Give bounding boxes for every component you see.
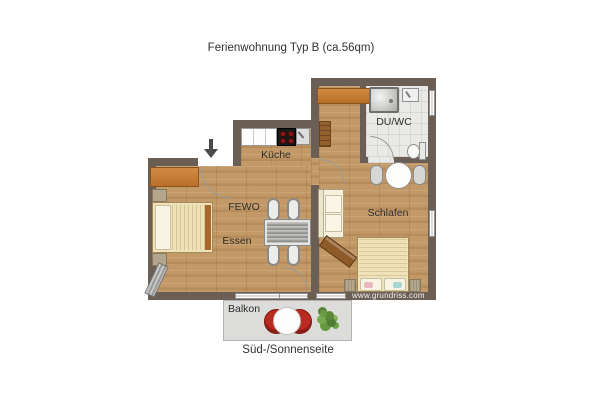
- sofa: [318, 189, 344, 238]
- dining-chair: [287, 198, 300, 221]
- room-label-schlafen: Schlafen: [357, 207, 419, 219]
- pillow-accent: [393, 282, 402, 288]
- room-label-kueche: Küche: [253, 149, 299, 161]
- room-label-duwc: DU/WC: [368, 116, 420, 128]
- floor-doorway: [311, 158, 319, 185]
- balcony-table: [273, 307, 301, 335]
- bed-pillow: [384, 278, 406, 291]
- watermark: www.grundriss.com: [352, 291, 425, 300]
- dining-chair: [287, 243, 300, 266]
- sofa-cushion: [325, 195, 342, 213]
- window-bathroom-right: [429, 90, 435, 116]
- sofa-backrest: [319, 190, 324, 237]
- wall-kitchen-top: [233, 120, 319, 128]
- faucet: [298, 131, 305, 138]
- sofa-cushion: [325, 214, 342, 232]
- kitchen-sink: [296, 128, 310, 145]
- dining-chair: [267, 198, 280, 221]
- pillow-accent: [364, 282, 373, 288]
- room-label-balkon: Balkon: [228, 303, 268, 315]
- kitchen-counter: [241, 128, 277, 146]
- orientation-label: Süd-/Sonnenseite: [188, 344, 388, 356]
- wall-bedroom-top: [311, 78, 436, 86]
- floor-plan-screen: Ferienwohnung Typ B (ca.56qm): [0, 0, 600, 400]
- toilet-bowl: [407, 144, 420, 159]
- room-label-fewo: FEWO: [222, 201, 266, 213]
- plant-foliage: [320, 310, 327, 317]
- nightstand: [152, 189, 167, 202]
- stove-burner: [280, 131, 286, 137]
- double-bed: [357, 237, 409, 292]
- window-bedroom-right: [429, 210, 435, 237]
- stove: [277, 128, 296, 146]
- bathroom-sink: [402, 88, 419, 102]
- page-title: Ferienwohnung Typ B (ca.56qm): [0, 42, 582, 54]
- shower: [369, 87, 399, 113]
- bed-blanket: [359, 239, 407, 278]
- shower-drain: [389, 99, 393, 103]
- entry-wardrobe: [150, 167, 199, 187]
- window-bedroom-bottom: [316, 293, 346, 299]
- toilet-tank: [419, 142, 426, 160]
- breakfast-chair: [370, 165, 383, 185]
- room-label-essen: Essen: [215, 235, 259, 247]
- stove-burner: [288, 131, 294, 137]
- entrance-arrow-icon: [204, 139, 218, 158]
- faucet: [405, 91, 411, 98]
- balcony-plant: [317, 308, 341, 332]
- bed-blanket: [172, 205, 205, 250]
- dining-table: [265, 220, 310, 245]
- stove-burner: [288, 138, 294, 144]
- bed-footboard: [205, 205, 211, 250]
- hall-wardrobe: [317, 88, 372, 104]
- window-living-left: [235, 293, 280, 299]
- breakfast-chair: [413, 165, 426, 185]
- stove-burner: [280, 138, 286, 144]
- arrow-head: [204, 149, 218, 158]
- single-bed: [152, 202, 213, 253]
- breakfast-table: [385, 162, 412, 189]
- window-balcony-door: [279, 293, 308, 299]
- bed-pillow: [155, 205, 171, 250]
- hall-cabinet: [319, 121, 331, 147]
- toilet: [407, 142, 427, 161]
- bed-pillow: [360, 278, 382, 291]
- dining-chair: [267, 243, 280, 266]
